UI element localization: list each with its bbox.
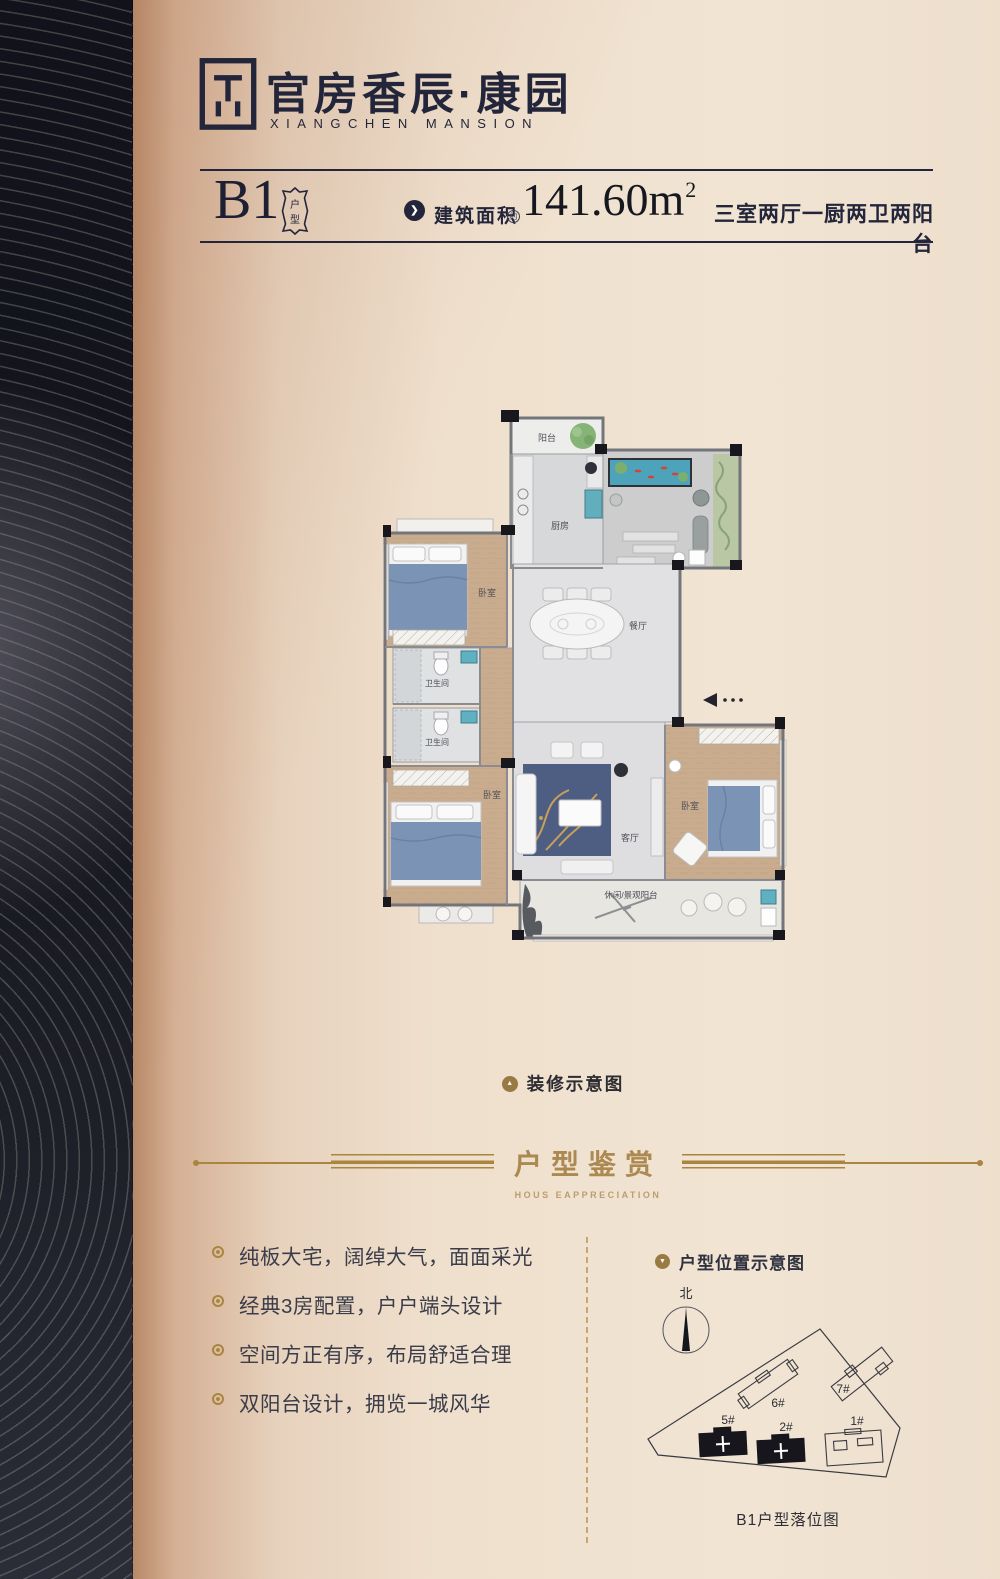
decor-left-panel [0, 0, 133, 1579]
bullet-icon [212, 1295, 224, 1307]
brand-logo-icon [198, 56, 258, 134]
label-balcony: 阳台 [538, 432, 556, 443]
wardrobe-icon [699, 728, 779, 744]
bullet-icon [212, 1344, 224, 1356]
room-kitchen [511, 454, 603, 568]
building-label: 1# [850, 1414, 864, 1428]
decor-lines-right [682, 1151, 983, 1173]
area-label: 建筑面积 [434, 201, 518, 228]
room-terrace [603, 450, 740, 568]
feature-item: 空间方正有序，布局舒适合理 [212, 1338, 584, 1368]
basin-icon [461, 711, 477, 723]
poster-page: 官房香辰·康园 XIANGCHEN MANSION B1 户 型 ❯ 建筑面积 … [0, 0, 1000, 1579]
brand-name-cn: 官房香辰·康园 [266, 58, 573, 122]
triangle-up-icon: ▲ [502, 1076, 518, 1092]
bed-icon [708, 786, 760, 851]
label-view-balcony: 休闲/景观阳台 [604, 890, 657, 900]
room-balcony-top [511, 418, 603, 454]
sink-icon [585, 490, 602, 518]
area-exponent: 2 [685, 177, 696, 202]
label-bedroom1: 卧室 [478, 587, 496, 598]
feature-list: 纯板大宅，阔绰大气，面面采光 经典3房配置，户户端头设计 空间方正有序，布局舒适… [212, 1240, 584, 1436]
floorplan-figure: 阳台 厨房 卧室 餐厅 卫生间 卫生间 卧室 客厅 卧室 休闲/景观阳台 [383, 398, 793, 972]
feature-text: 纯板大宅，阔绰大气，面面采光 [239, 1240, 533, 1270]
compass-north-label: 北 [679, 1286, 692, 1301]
label-bedroom3: 卧室 [681, 800, 699, 811]
room-bedroom1 [385, 519, 507, 647]
section-subtitle: HOUS EAPPRECIATION [514, 1190, 662, 1200]
feature-text: 空间方正有序，布局舒适合理 [239, 1338, 512, 1368]
unit-type-seal: 户 型 [280, 186, 310, 236]
basin-icon [461, 651, 477, 663]
toilet-icon [434, 717, 448, 735]
seal-char-top: 户 [290, 198, 300, 211]
label-living: 客厅 [621, 832, 639, 843]
building-label: 7# [836, 1382, 850, 1396]
section-header: 户型鉴赏 HOUS EAPPRECIATION [193, 1143, 983, 1200]
room-living [513, 722, 665, 880]
building-label: 5# [721, 1413, 735, 1427]
feature-item: 双阳台设计，拥览一城风华 [212, 1387, 584, 1417]
site-plan: 北 6# 7# [638, 1280, 938, 1504]
bed-icon [389, 564, 467, 630]
room-bath2 [393, 708, 480, 762]
building-label: 2# [779, 1420, 793, 1434]
plan-caption-text: 装修示意图 [527, 1071, 625, 1096]
unit-code: B1 [214, 172, 279, 228]
bullet-icon [212, 1393, 224, 1405]
location-header-text: 户型位置示意图 [679, 1249, 805, 1274]
label-kitchen: 厨房 [551, 520, 569, 531]
decor-lines-left [193, 1151, 494, 1173]
hallway [480, 648, 513, 766]
coffee-table-icon [559, 800, 601, 826]
room-dining [513, 564, 680, 722]
label-bath2: 卫生间 [425, 737, 449, 747]
feature-text: 经典3房配置，户户端头设计 [239, 1289, 503, 1319]
site-plan-caption: B1户型落位图 [648, 1508, 928, 1530]
bed-icon [391, 822, 481, 880]
building-label: 6# [771, 1396, 785, 1410]
location-header: ▼ 户型位置示意图 [655, 1249, 805, 1274]
seal-char-bottom: 型 [290, 213, 300, 226]
label-bath1: 卫生间 [425, 678, 449, 688]
building-1: 1# [825, 1414, 883, 1466]
unit-layout-description: 三室两厅一厨两卫两阳台 [698, 198, 934, 258]
tv-cabinet-icon [651, 778, 663, 856]
room-bath1 [393, 648, 480, 704]
feature-item: 经典3房配置，户户端头设计 [212, 1289, 584, 1319]
area-value: 141.60m2 [522, 175, 696, 226]
planting-strip [713, 454, 740, 568]
divider-top [200, 169, 933, 171]
approx-circle-icon: 约 [507, 210, 520, 223]
wardrobe-icon [393, 770, 469, 786]
room-view-balcony [520, 880, 783, 938]
bullet-icon [212, 1246, 224, 1258]
feature-item: 纯板大宅，阔绰大气，面面采光 [212, 1240, 584, 1270]
dining-table-icon [530, 599, 624, 649]
plan-caption: ▲ 装修示意图 [413, 1071, 713, 1096]
building-5-highlighted: 5# [698, 1413, 747, 1457]
wardrobe-icon [393, 630, 465, 645]
plant-icon [570, 423, 596, 449]
building-2-highlighted: 2# [756, 1420, 805, 1464]
compass: 北 [663, 1286, 709, 1353]
label-bedroom2: 卧室 [483, 789, 501, 800]
section-title: 户型鉴赏 [514, 1143, 662, 1183]
toilet-icon [434, 657, 448, 675]
label-dining: 餐厅 [629, 620, 647, 631]
entrance-arrow-icon [703, 693, 743, 707]
feature-text: 双阳台设计，拥览一城风华 [239, 1387, 491, 1417]
chevron-circle-icon: ❯ [404, 200, 425, 221]
compass-needle-icon [682, 1309, 690, 1351]
sofa-icon [516, 774, 536, 854]
triangle-down-icon: ▼ [655, 1254, 670, 1269]
area-number: 141.60m [522, 174, 684, 225]
dashed-divider [586, 1237, 588, 1543]
brand-name-en: XIANGCHEN MANSION [270, 116, 539, 131]
